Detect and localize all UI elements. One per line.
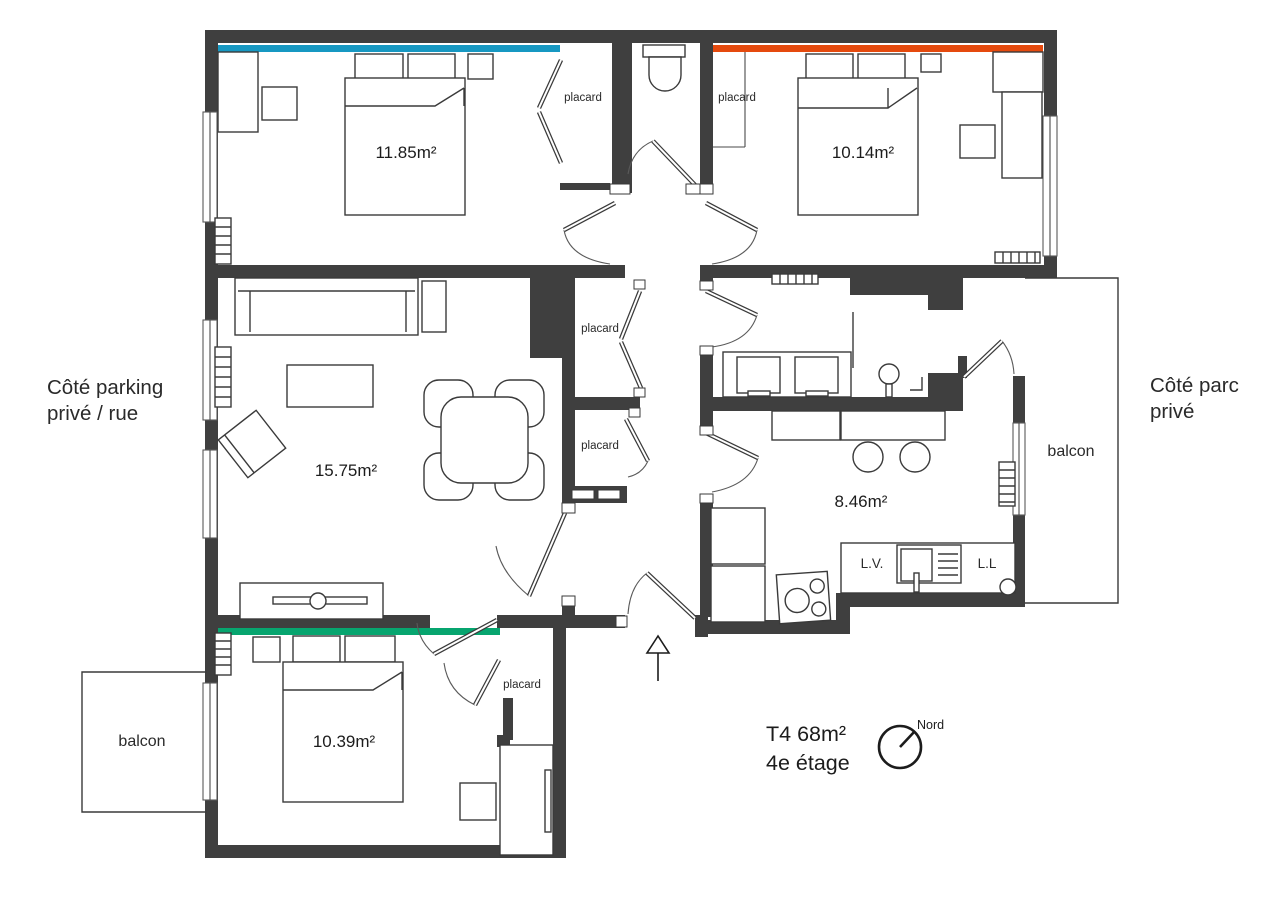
stool-icon xyxy=(900,442,930,472)
living-room xyxy=(218,278,575,619)
placard-label: placard xyxy=(503,679,541,691)
compass: Nord xyxy=(879,718,944,768)
chair-icon xyxy=(262,87,297,120)
window-living-2 xyxy=(203,450,217,538)
floor-plan-drawing: Nord 11.85m² 10.14m² 15.75m² 8.46m² 10.3… xyxy=(0,0,1280,905)
tv-stand-icon xyxy=(240,583,383,619)
chair-icon xyxy=(960,125,995,158)
washing-machine-label: L.L xyxy=(978,556,997,571)
living-door xyxy=(496,503,575,606)
dishwasher-label: L.V. xyxy=(861,556,884,571)
shelf xyxy=(572,490,594,499)
wardrobe-icon xyxy=(500,745,553,855)
chair-icon xyxy=(460,783,496,820)
toilet-icon xyxy=(643,45,685,91)
area-label-living: 15.75m² xyxy=(315,461,378,480)
desk-icon xyxy=(1002,92,1042,178)
hob-icon xyxy=(776,571,830,623)
sofa-icon xyxy=(235,278,418,335)
placard-label: placard xyxy=(581,440,619,452)
placard-label: placard xyxy=(718,92,756,104)
plan-title-line1: T4 68m² xyxy=(766,722,846,746)
counter xyxy=(711,566,765,622)
radiator-icon xyxy=(215,633,231,675)
entrance-arrow-icon xyxy=(647,636,669,681)
nightstand-icon xyxy=(921,54,941,72)
kitchen-door xyxy=(700,426,758,503)
closet-door xyxy=(626,408,648,477)
bathroom-door xyxy=(700,281,757,355)
window-bedroom-bottom-balcony xyxy=(203,683,217,800)
plan-title-line2: 4e étage xyxy=(766,751,850,775)
double-bed-icon xyxy=(345,54,465,215)
window-bedroom-top-left xyxy=(203,112,217,222)
placard-label: placard xyxy=(564,92,602,104)
double-bed-icon xyxy=(798,54,918,215)
desk-icon xyxy=(993,52,1043,92)
desk-icon xyxy=(218,52,258,132)
wc-door xyxy=(628,141,700,194)
accent-bar-bedroom-top-right xyxy=(713,45,1043,52)
radiator-icon xyxy=(999,462,1015,506)
compass-north-label: Nord xyxy=(917,718,944,732)
wc xyxy=(628,45,700,194)
double-bed-icon xyxy=(283,636,403,802)
duct-block xyxy=(530,275,567,358)
balcon-label-right: balcon xyxy=(1047,443,1094,460)
area-label-bedroom-top-right: 10.14m² xyxy=(832,143,895,162)
accent-bar-bedroom-bottom xyxy=(218,628,500,635)
radiator-icon xyxy=(215,347,231,407)
balcony-right-outline xyxy=(1025,278,1118,603)
dining-table-icon xyxy=(424,380,544,500)
side-table-icon xyxy=(422,281,446,332)
bedroom-door xyxy=(564,184,630,264)
armchair-icon xyxy=(218,410,285,477)
bathroom xyxy=(700,281,922,397)
radiator-icon xyxy=(772,274,818,284)
left-side-caption-line1: Côté parking xyxy=(47,376,163,399)
floor-plan-page: Nord 11.85m² 10.14m² 15.75m² 8.46m² 10.3… xyxy=(0,0,1280,905)
left-side-caption-line2: privé / rue xyxy=(47,402,138,425)
bar-counter xyxy=(841,411,945,440)
shelf xyxy=(598,490,620,499)
entrance-door xyxy=(616,573,695,627)
area-label-bedroom-bottom: 10.39m² xyxy=(313,732,376,751)
nightstand-icon xyxy=(253,637,280,662)
closet-bifold-door xyxy=(621,280,645,397)
fridge-icon xyxy=(711,508,765,564)
area-label-kitchen: 8.46m² xyxy=(835,492,888,511)
double-washbasin-icon xyxy=(723,352,851,397)
closet-door xyxy=(444,660,499,705)
balcony-door xyxy=(964,341,1014,377)
radiator-icon xyxy=(215,218,231,264)
entrance xyxy=(616,573,695,681)
placard-label: placard xyxy=(581,323,619,335)
right-side-caption-line2: privé xyxy=(1150,400,1194,423)
coffee-table-icon xyxy=(287,365,373,407)
area-label-bedroom-top-left: 11.85m² xyxy=(375,143,436,162)
bar-counter xyxy=(772,411,840,440)
shower-icon xyxy=(853,312,922,397)
accent-bar-bedroom-top-left xyxy=(218,45,560,52)
hall-closets xyxy=(572,280,648,499)
balcon-label-left: balcon xyxy=(118,733,165,750)
window-bedroom-top-right xyxy=(1043,116,1057,256)
right-side-caption-line1: Côté parc xyxy=(1150,374,1239,397)
radiator-icon xyxy=(995,252,1040,263)
closet-bifold-door xyxy=(539,60,561,163)
bedroom-door xyxy=(700,184,757,264)
compass-needle xyxy=(900,731,915,747)
stool-icon xyxy=(853,442,883,472)
nightstand-icon xyxy=(468,54,493,79)
